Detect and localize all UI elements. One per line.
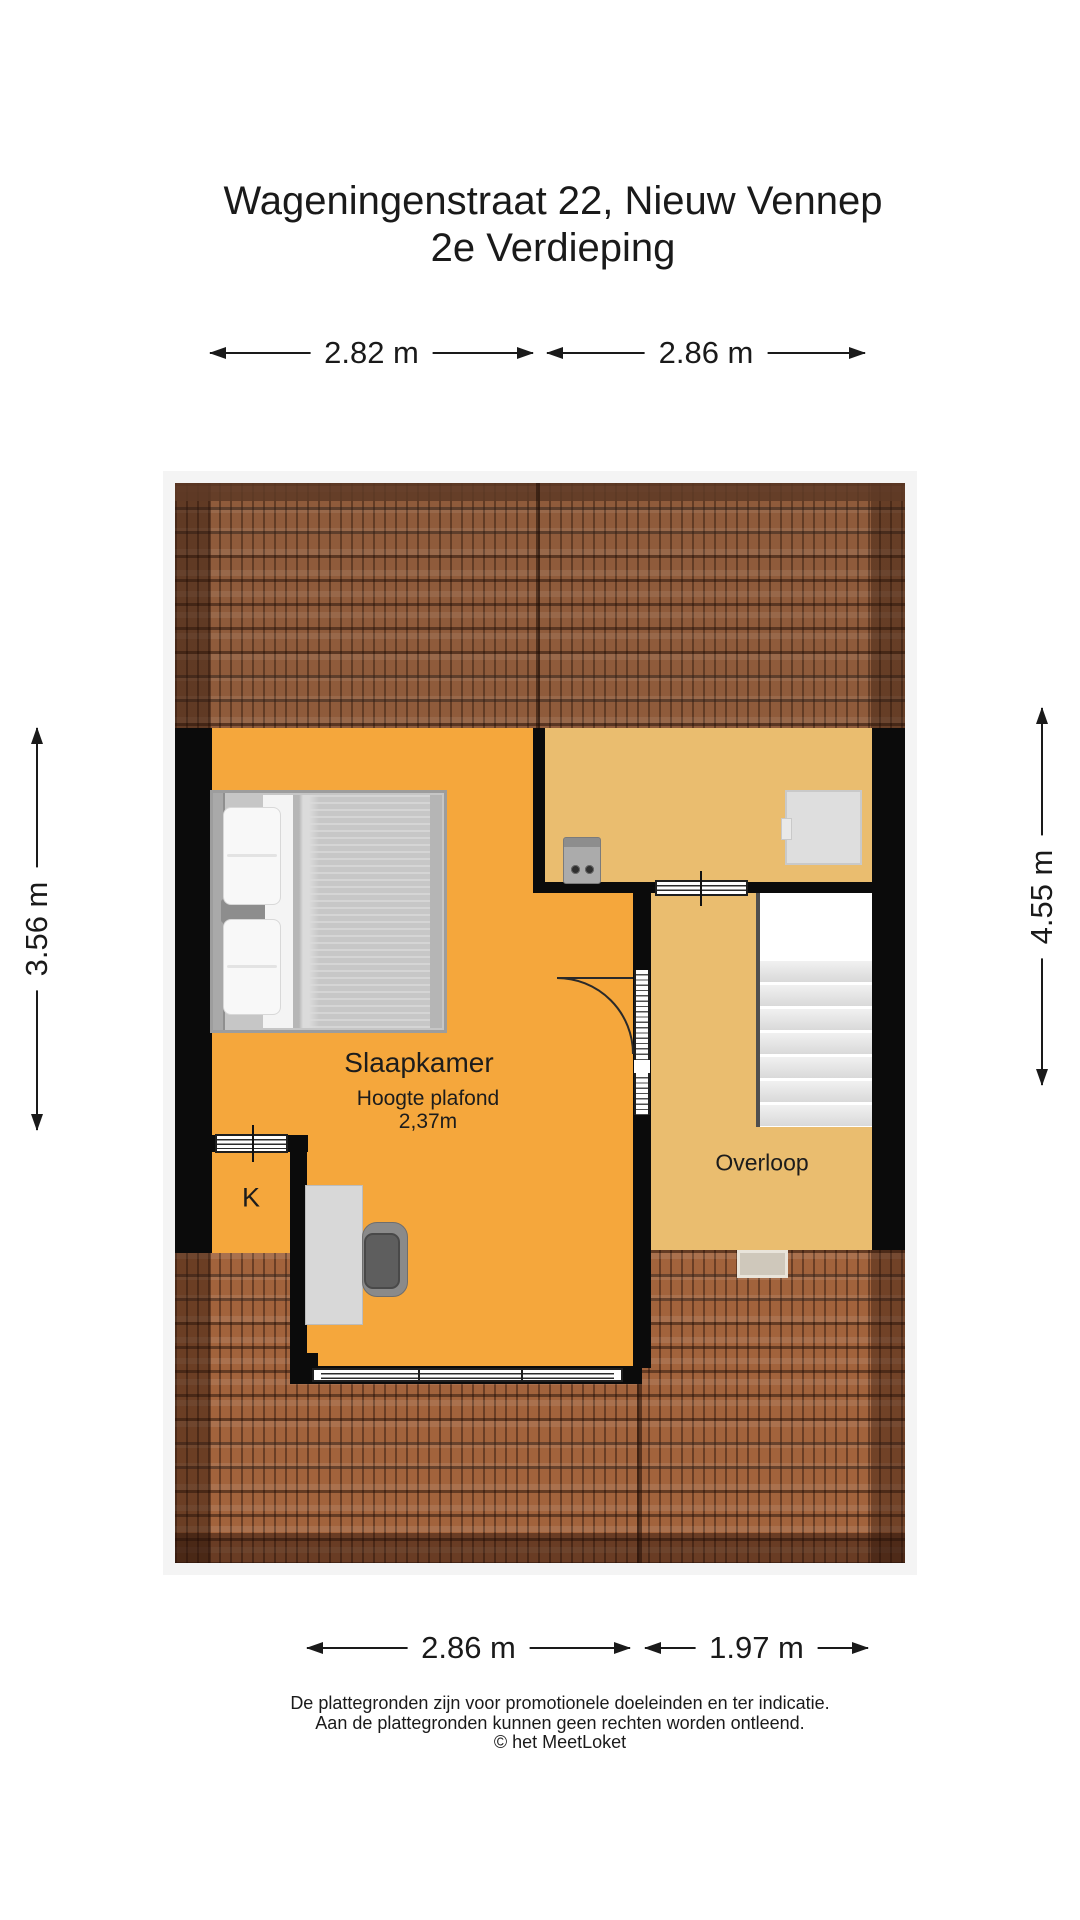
floorplan-page: Wageningenstraat 22, Nieuw Vennep 2e Ver… (0, 0, 1080, 1920)
staircase (756, 893, 872, 1127)
bed (210, 790, 447, 1033)
wall-left (175, 728, 212, 1253)
roof-window-mat (737, 1250, 788, 1278)
wall-bottom-corner (290, 1353, 318, 1366)
disclaimer-line-3: © het MeetLoket (40, 1733, 1080, 1753)
door-frame-gap (634, 1060, 650, 1073)
window-kast-tick (252, 1125, 254, 1162)
window-bottom-cap-right (614, 1371, 621, 1379)
kast-label: K (242, 1183, 260, 1214)
storage-cabinet (785, 790, 862, 865)
boiler-knob-right (585, 865, 594, 874)
desk (305, 1185, 363, 1325)
storage-cabinet-handle (781, 818, 792, 840)
wall-divider-top (533, 728, 545, 893)
bed-mattress-edge (430, 795, 442, 1028)
disclaimer-line-1: De plattegronden zijn voor promotionele … (40, 1694, 1080, 1714)
bed-duvet (293, 795, 430, 1028)
boiler-unit (563, 837, 601, 884)
door-swing-arc (553, 971, 635, 1061)
wall-right (872, 728, 905, 1250)
window-bottom (312, 1368, 623, 1382)
dimension-bottom-left-label: 2.86 m (407, 1630, 530, 1666)
page-title: Wageningenstraat 22, Nieuw Vennep 2e Ver… (13, 178, 1080, 272)
floorplan-drawing: Slaapkamer Hoogte plafond 2,37m Overloop… (175, 483, 905, 1563)
pillow-bottom (223, 919, 281, 1015)
ceiling-height-label: Hoogte plafond (357, 1087, 499, 1110)
office-chair-seat (364, 1233, 400, 1289)
dimension-top-right-label: 2.86 m (645, 335, 768, 371)
dimension-bottom-left: 2.86 m (307, 1647, 630, 1649)
roof-upper (175, 483, 905, 731)
dimension-bottom-right: 1.97 m (645, 1647, 868, 1649)
roof-ridge (175, 483, 905, 501)
disclaimer-line-2: Aan de plattegronden kunnen geen rechten… (40, 1714, 1080, 1734)
dimension-top-right: 2.86 m (547, 352, 865, 354)
dimension-bottom-right-label: 1.97 m (695, 1630, 818, 1666)
disclaimer: De plattegronden zijn voor promotionele … (40, 1694, 1080, 1753)
staircase-treads (760, 958, 872, 1127)
slaapkamer-label: Slaapkamer (344, 1047, 493, 1079)
overloop-label: Overloop (715, 1150, 808, 1177)
roof-eaves (175, 1533, 905, 1563)
window-mid-tick (700, 871, 702, 906)
wall-door (633, 893, 651, 1368)
dimension-left-label: 3.56 m (19, 868, 55, 991)
pillow-top (223, 807, 281, 905)
boiler-knob-left (571, 865, 580, 874)
dimension-top-left-label: 2.82 m (310, 335, 433, 371)
dimension-left: 3.56 m (36, 728, 38, 1130)
window-bottom-mullion-2 (521, 1370, 523, 1380)
window-bottom-mullion-1 (418, 1370, 420, 1380)
title-address: Wageningenstraat 22, Nieuw Vennep (13, 178, 1080, 225)
ceiling-height-note: Hoogte plafond 2,37m (357, 1087, 499, 1133)
roof-seam-upper (536, 483, 540, 728)
dimension-top-left: 2.82 m (210, 352, 533, 354)
title-floor: 2e Verdieping (13, 225, 1080, 272)
ceiling-height-value: 2,37m (357, 1110, 499, 1133)
dimension-right: 4.55 m (1041, 708, 1043, 1085)
door-opening (634, 970, 650, 1060)
dimension-right-label: 4.55 m (1024, 835, 1060, 958)
window-bottom-cap-left (314, 1371, 321, 1379)
window-door-wall (634, 1073, 650, 1115)
office-chair (362, 1222, 408, 1297)
